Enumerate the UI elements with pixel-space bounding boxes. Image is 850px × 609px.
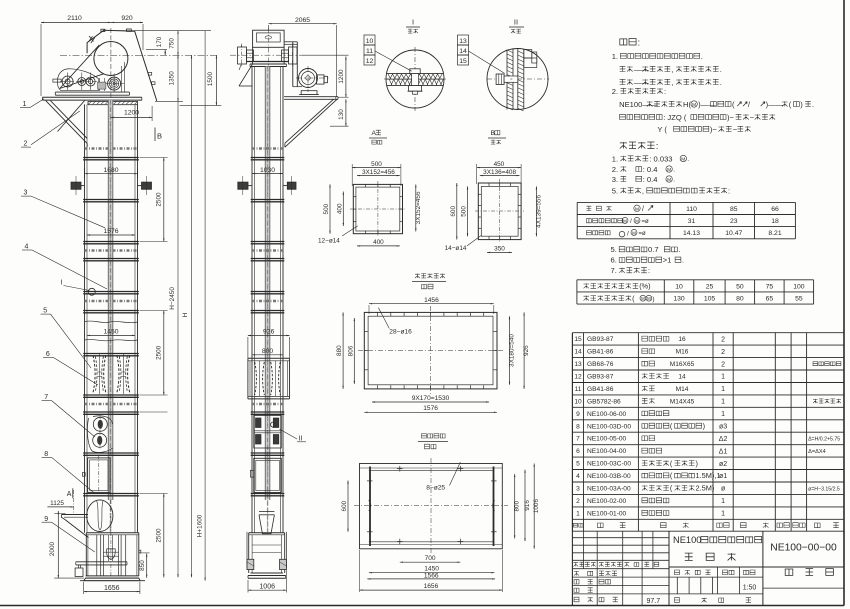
svg-text:M: M <box>635 206 639 212</box>
svg-text:500: 500 <box>461 206 468 217</box>
svg-text:100: 100 <box>793 283 805 290</box>
svg-text:: JZQ (: : JZQ ( <box>663 113 687 122</box>
svg-text:2: 2 <box>24 141 28 148</box>
svg-text:750: 750 <box>168 38 175 49</box>
svg-text:——: —— <box>634 78 650 87</box>
svg-text:9: 9 <box>576 411 580 418</box>
svg-text:M: M <box>635 218 639 223</box>
svg-text:.: . <box>678 245 680 254</box>
svg-text:1: 1 <box>721 511 725 518</box>
svg-text:700: 700 <box>425 555 436 562</box>
svg-text:M14: M14 <box>676 386 689 393</box>
svg-text:880: 880 <box>336 345 343 356</box>
svg-text:6.: 6. <box>611 256 617 265</box>
svg-text:450: 450 <box>494 161 505 168</box>
svg-text:4: 4 <box>576 473 580 480</box>
svg-text:18: 18 <box>771 218 779 225</box>
svg-text:ø=H−3.15/2.5: ø=H−3.15/2.5 <box>808 487 840 493</box>
svg-text:105: 105 <box>704 296 716 303</box>
svg-text:)−: )− <box>710 125 718 134</box>
svg-text:.: . <box>720 78 722 87</box>
svg-text:14−ø14: 14−ø14 <box>445 245 467 252</box>
svg-text:1125: 1125 <box>50 500 64 507</box>
svg-text:GB93-87: GB93-87 <box>587 336 614 343</box>
svg-text:6: 6 <box>576 448 580 455</box>
svg-text:2.: 2. <box>612 165 618 174</box>
svg-text:: 0.4: : 0.4 <box>643 175 658 184</box>
svg-text:1500: 1500 <box>207 71 214 86</box>
svg-text:2500: 2500 <box>156 192 163 207</box>
svg-text:7.: 7. <box>611 266 617 275</box>
svg-text:1: 1 <box>721 399 725 406</box>
svg-text:NE100-02-00: NE100-02-00 <box>587 498 627 505</box>
svg-text:/: / <box>642 206 644 213</box>
svg-text:1680: 1680 <box>103 167 118 174</box>
svg-text:1576: 1576 <box>423 405 438 412</box>
svg-text:NE100-06-00: NE100-06-00 <box>587 411 627 418</box>
svg-text:8: 8 <box>576 423 580 430</box>
svg-text:NE100-03D-00: NE100-03D-00 <box>587 423 631 430</box>
svg-text:66: 66 <box>771 206 779 213</box>
svg-text:,: , <box>642 186 644 195</box>
svg-text:1: 1 <box>721 386 725 393</box>
svg-text:9: 9 <box>44 516 48 523</box>
svg-text:3.: 3. <box>612 175 618 184</box>
svg-text:/: / <box>627 230 629 237</box>
svg-text:(%): (%) <box>639 282 650 291</box>
svg-text:10: 10 <box>574 398 582 405</box>
svg-text:H+1600: H+1600 <box>196 514 203 537</box>
svg-text:1566: 1566 <box>424 572 439 579</box>
svg-text:NE100−00−00: NE100−00−00 <box>770 543 837 554</box>
svg-text:85: 85 <box>730 206 738 213</box>
svg-text:2.5M): 2.5M) <box>696 484 715 493</box>
svg-text:130: 130 <box>338 109 345 120</box>
svg-text:M: M <box>667 177 671 183</box>
svg-text:806: 806 <box>347 345 354 356</box>
svg-text:=ø: =ø <box>642 219 650 225</box>
svg-text:NE100——: NE100—— <box>619 100 658 109</box>
svg-text:M: M <box>667 167 671 173</box>
svg-text:926: 926 <box>523 345 530 356</box>
svg-text:80: 80 <box>736 296 744 303</box>
svg-text:A: A <box>67 491 72 498</box>
svg-text:5: 5 <box>43 308 47 315</box>
svg-text:926: 926 <box>263 329 275 336</box>
svg-text:1:50: 1:50 <box>743 585 757 592</box>
svg-text:Δ2: Δ2 <box>719 436 728 443</box>
svg-text:2500: 2500 <box>156 345 163 360</box>
svg-text:ø: ø <box>721 486 726 493</box>
svg-text:916: 916 <box>524 500 531 511</box>
svg-text:): ) <box>696 459 698 468</box>
svg-text::: : <box>728 186 730 195</box>
svg-text:,: , <box>671 65 673 74</box>
svg-text:10: 10 <box>366 38 374 45</box>
svg-text:1.: 1. <box>612 52 618 61</box>
svg-text:1576: 1576 <box>103 228 118 235</box>
svg-text:4X139=556: 4X139=556 <box>535 195 542 228</box>
svg-text::: : <box>656 141 659 152</box>
svg-text:14.13: 14.13 <box>683 230 700 237</box>
svg-text:B: B <box>157 132 162 141</box>
svg-text:1450: 1450 <box>103 329 118 336</box>
svg-text:3X152=456: 3X152=456 <box>415 191 422 224</box>
svg-text:1: 1 <box>23 101 27 108</box>
svg-text:1: 1 <box>721 374 725 381</box>
svg-text:13: 13 <box>574 361 582 368</box>
svg-text:5: 5 <box>576 461 580 468</box>
svg-text:15: 15 <box>574 336 582 343</box>
svg-text:1200: 1200 <box>124 110 139 117</box>
svg-text:1.: 1. <box>612 154 618 163</box>
svg-text:I: I <box>61 280 63 287</box>
svg-text:2110: 2110 <box>67 15 82 22</box>
svg-text:3X136=408: 3X136=408 <box>483 169 516 176</box>
svg-text:600: 600 <box>341 500 348 511</box>
svg-text:NE100-03C-00: NE100-03C-00 <box>587 461 631 468</box>
svg-text:110: 110 <box>686 206 697 213</box>
svg-text:Y (: Y ( <box>657 125 667 134</box>
svg-text:=ø: =ø <box>639 231 647 237</box>
svg-text:400: 400 <box>373 239 384 246</box>
svg-text:23: 23 <box>730 218 738 225</box>
svg-text:M14X45: M14X45 <box>670 398 695 405</box>
svg-text:M16: M16 <box>676 349 689 356</box>
svg-text:: 0.4: : 0.4 <box>643 165 658 174</box>
svg-text:3: 3 <box>576 486 580 493</box>
svg-text:A: A <box>372 130 377 137</box>
svg-text:M: M <box>641 296 645 301</box>
svg-text:11: 11 <box>575 386 582 393</box>
svg-text:H−2450: H−2450 <box>169 287 176 310</box>
svg-text:2: 2 <box>721 336 725 343</box>
svg-text:M: M <box>647 296 651 301</box>
svg-text:.: . <box>673 167 675 174</box>
svg-text:II: II <box>514 18 518 27</box>
svg-text:1.5M),1: 1.5M),1 <box>696 471 721 480</box>
svg-text:0.7: 0.7 <box>648 245 659 254</box>
svg-text:800: 800 <box>514 500 521 511</box>
svg-text:7: 7 <box>44 394 48 401</box>
svg-text:7: 7 <box>576 436 580 443</box>
svg-text:ø1: ø1 <box>719 473 727 480</box>
svg-text:——: —— <box>634 65 650 74</box>
svg-text:M: M <box>681 157 685 163</box>
svg-text:10.47: 10.47 <box>725 230 742 237</box>
svg-text:14: 14 <box>459 48 467 55</box>
svg-text:920: 920 <box>121 15 133 22</box>
svg-text:/: / <box>630 218 632 225</box>
svg-text:: 0.033: : 0.033 <box>649 154 672 163</box>
svg-text:2065: 2065 <box>295 17 310 24</box>
svg-text:NE100-03A-00: NE100-03A-00 <box>587 486 631 493</box>
svg-text:50: 50 <box>736 283 744 290</box>
svg-text:GB5782-86: GB5782-86 <box>587 398 621 405</box>
svg-text:11: 11 <box>366 48 373 55</box>
svg-text:1006: 1006 <box>259 583 275 590</box>
svg-text:−: − <box>750 113 755 122</box>
svg-text:>1: >1 <box>663 256 672 265</box>
svg-text:1: 1 <box>576 510 580 517</box>
svg-text:GB93-87: GB93-87 <box>587 374 614 381</box>
svg-text:2: 2 <box>721 349 725 356</box>
svg-text:Δ1: Δ1 <box>719 448 728 455</box>
svg-text:1456: 1456 <box>424 297 439 304</box>
svg-text:2500: 2500 <box>156 528 163 543</box>
svg-text:3X180=540: 3X180=540 <box>509 334 516 367</box>
svg-text:850: 850 <box>139 560 146 571</box>
svg-text:9X170=1530: 9X170=1530 <box>412 395 450 402</box>
svg-text:)——: )—— <box>766 100 784 109</box>
svg-text:6: 6 <box>46 351 50 358</box>
svg-text:NE100-01-00: NE100-01-00 <box>587 510 627 517</box>
svg-text:.: . <box>720 65 722 74</box>
svg-text:13: 13 <box>459 38 467 45</box>
svg-text:500: 500 <box>371 161 382 168</box>
svg-text:3X152=456: 3X152=456 <box>362 169 395 176</box>
svg-text:.: . <box>673 177 675 184</box>
svg-text:,: , <box>671 78 673 87</box>
svg-text:55: 55 <box>795 296 803 303</box>
svg-text:5.: 5. <box>612 186 618 195</box>
svg-text:Δ=H/0.2+5.75: Δ=H/0.2+5.75 <box>808 437 840 443</box>
svg-text:500: 500 <box>323 203 330 214</box>
svg-text:5.: 5. <box>611 245 617 254</box>
svg-text:65: 65 <box>766 296 774 303</box>
svg-text:M: M <box>692 102 696 108</box>
svg-text:12: 12 <box>366 58 374 65</box>
svg-text:3: 3 <box>24 190 28 197</box>
svg-text:800: 800 <box>262 348 274 355</box>
svg-text:M: M <box>623 218 627 223</box>
svg-text:ø2: ø2 <box>719 461 727 468</box>
svg-text::: : <box>648 266 650 275</box>
svg-text:75: 75 <box>766 283 774 290</box>
svg-text:GB68-76: GB68-76 <box>587 361 614 368</box>
svg-text:400: 400 <box>336 203 343 214</box>
svg-text:GB41-86: GB41-86 <box>587 349 614 356</box>
svg-text:H(: H( <box>683 100 691 109</box>
svg-text:8: 8 <box>44 451 48 458</box>
svg-text:NE100-05-00: NE100-05-00 <box>587 436 627 443</box>
svg-text:2: 2 <box>721 361 725 368</box>
svg-text:8.21: 8.21 <box>768 230 781 237</box>
svg-text:): ) <box>703 422 705 431</box>
svg-text:97.7: 97.7 <box>647 598 661 605</box>
svg-text:NE100-04-00: NE100-04-00 <box>587 448 627 455</box>
svg-text:NE100-03B-00: NE100-03B-00 <box>587 473 631 480</box>
svg-text:28−ø16: 28−ø16 <box>389 329 412 336</box>
svg-text:25: 25 <box>706 283 714 290</box>
svg-text:.: . <box>687 156 689 163</box>
svg-text:16: 16 <box>678 336 686 343</box>
svg-text:1350: 1350 <box>168 71 175 86</box>
svg-text:)−: )− <box>727 113 735 122</box>
svg-text:15: 15 <box>459 58 467 65</box>
svg-text:350: 350 <box>494 245 505 252</box>
svg-text:.: . <box>812 100 814 109</box>
svg-text:.: . <box>701 52 703 61</box>
svg-text:ø3: ø3 <box>719 424 727 431</box>
svg-text:): ) <box>652 296 654 303</box>
svg-text:1: 1 <box>721 498 725 505</box>
svg-text:10: 10 <box>675 283 683 290</box>
svg-text:600: 600 <box>450 206 457 217</box>
svg-text:14: 14 <box>678 374 686 381</box>
svg-text:12−ø14: 12−ø14 <box>318 238 340 245</box>
svg-text:31: 31 <box>688 218 696 225</box>
svg-text:1006: 1006 <box>533 499 540 514</box>
svg-text:GB41-86: GB41-86 <box>587 386 614 393</box>
svg-text:130: 130 <box>673 296 685 303</box>
svg-text:Δ=ΔX4: Δ=ΔX4 <box>808 449 826 455</box>
svg-text:H: H <box>182 312 189 317</box>
svg-text::: : <box>664 87 666 96</box>
svg-text::: : <box>638 37 641 48</box>
svg-text:M: M <box>632 230 636 235</box>
svg-text:−: − <box>733 125 738 134</box>
svg-text:1656: 1656 <box>104 585 120 592</box>
svg-text:2.: 2. <box>612 87 618 96</box>
svg-text:1200: 1200 <box>338 69 345 84</box>
svg-text:1656: 1656 <box>424 583 439 590</box>
svg-text:II: II <box>298 435 302 442</box>
svg-text:2: 2 <box>576 498 580 505</box>
svg-text:1030: 1030 <box>260 167 275 174</box>
svg-text:M16X65: M16X65 <box>670 361 695 368</box>
svg-text:12: 12 <box>574 374 582 381</box>
svg-text:.: . <box>682 256 684 265</box>
svg-text:1: 1 <box>721 411 725 418</box>
svg-text:I: I <box>412 18 414 27</box>
svg-text:2000: 2000 <box>49 541 56 556</box>
svg-text:8−ø25: 8−ø25 <box>426 484 445 491</box>
svg-text:14: 14 <box>574 349 582 356</box>
svg-text:170: 170 <box>156 36 163 47</box>
svg-text:NE100: NE100 <box>673 535 701 545</box>
svg-text:4: 4 <box>25 244 29 251</box>
